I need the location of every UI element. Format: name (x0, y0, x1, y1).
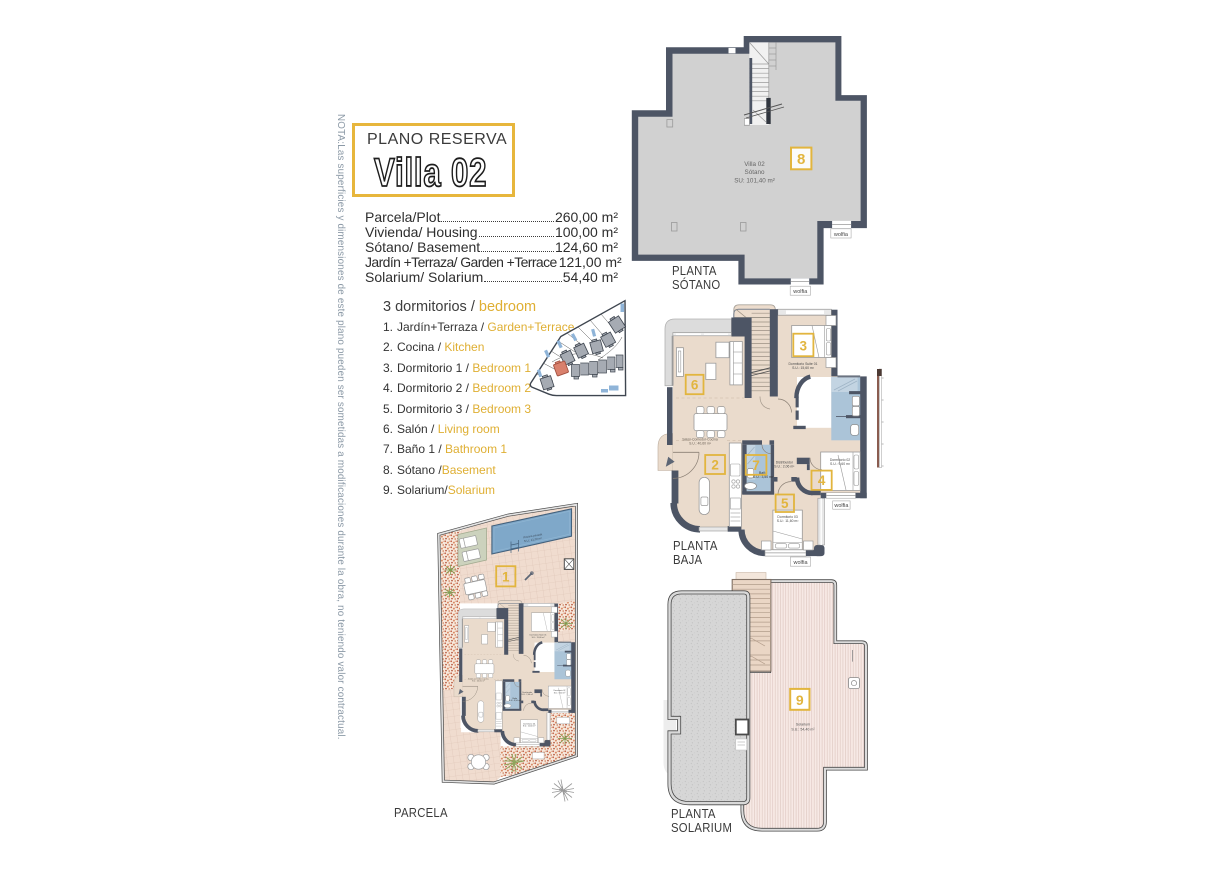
svg-text:S.U.: 11,60 m²: S.U.: 11,60 m² (777, 519, 799, 523)
svg-text:S.U.: 40,60 m²: S.U.: 40,60 m² (689, 441, 712, 445)
svg-text:4: 4 (818, 473, 826, 488)
svg-text:SU: 101,40 m²: SU: 101,40 m² (734, 178, 775, 185)
svg-text:wolfia: wolfia (792, 289, 808, 295)
svg-text:Sótano: Sótano (745, 169, 765, 176)
svg-text:9: 9 (796, 692, 804, 708)
svg-text:S.U.: 54,40 m²: S.U.: 54,40 m² (791, 727, 815, 731)
svg-text:Solarium: Solarium (796, 723, 810, 727)
svg-text:S.U.: 2,06 m²: S.U.: 2,06 m² (774, 465, 795, 469)
svg-text:5: 5 (781, 496, 789, 511)
svg-text:7: 7 (752, 458, 760, 473)
svg-text:wolfia: wolfia (833, 232, 849, 238)
svg-text:3: 3 (800, 338, 808, 353)
svg-text:2: 2 (711, 457, 719, 472)
svg-text:wolfia: wolfia (833, 503, 849, 509)
svg-text:Villa 02: Villa 02 (744, 161, 765, 168)
svg-text:S.U.: 15,60 m²: S.U.: 15,60 m² (792, 366, 815, 370)
svg-text:1: 1 (502, 570, 510, 585)
svg-text:S.U.: 9,60 m²: S.U.: 9,60 m² (830, 462, 851, 466)
svg-text:6: 6 (691, 378, 699, 393)
svg-text:S.U.: 3,50 m²: S.U.: 3,50 m² (753, 475, 774, 479)
svg-text:8: 8 (797, 151, 805, 168)
